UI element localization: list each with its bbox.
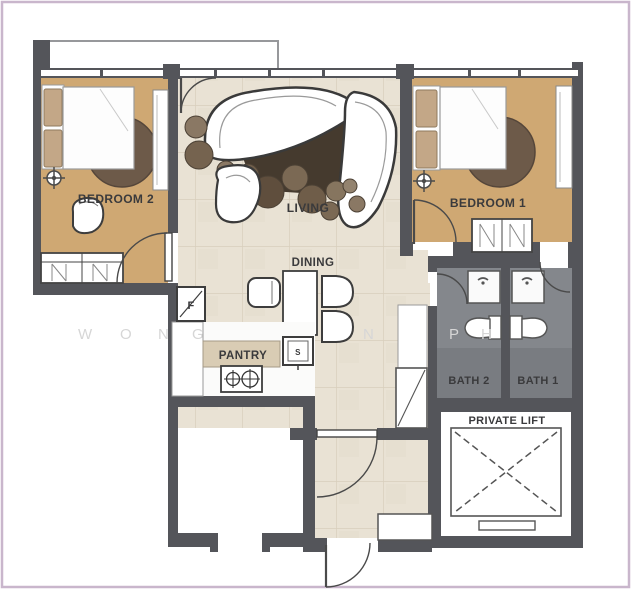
bath2-floor-shade <box>437 348 502 398</box>
window-post-a <box>163 64 180 79</box>
bath1-floor-shade <box>510 348 572 398</box>
watermark-letter: P <box>449 326 459 343</box>
wall-right <box>572 62 583 258</box>
window-mullion <box>214 68 217 78</box>
wall-bath-top-a <box>428 256 540 268</box>
pantry-label: PANTRY <box>219 350 267 362</box>
window-mullion <box>100 68 103 78</box>
watermark-letter: N <box>363 326 374 343</box>
shaft-icon <box>396 368 427 428</box>
dining-chair-icon <box>322 311 353 342</box>
bedroom1-label: BEDROOM 1 <box>450 196 526 210</box>
wall-room-top <box>168 395 315 407</box>
wall-bedroom2-living-divider <box>168 68 178 233</box>
wall-jamb-a <box>210 533 218 552</box>
wall-bath-left-b <box>428 306 437 408</box>
dining-chair-icon <box>322 276 353 307</box>
wall-left <box>33 42 41 293</box>
hall-cabinet-icon <box>398 305 427 368</box>
dining-label: DINING <box>292 257 335 269</box>
watermark-letter: H <box>481 326 492 343</box>
fridge-label: F <box>187 300 194 312</box>
vanity-icon <box>512 271 544 303</box>
wall-bedroom2-bottom <box>33 283 174 295</box>
wall-corridor-top-left <box>290 428 317 440</box>
entry-alcove <box>378 514 432 540</box>
window-mullion <box>268 68 271 78</box>
vanity-icon <box>468 271 500 303</box>
floor-plan-page: W O N G N P H BEDROOM 2 BEDROOM 1 LIVING… <box>0 0 632 600</box>
wardrobe-tall-icon <box>556 86 572 188</box>
bed-icon <box>63 87 134 169</box>
wall-bedroom1-bottom-c <box>568 242 583 256</box>
floor-plan: W O N G N P H BEDROOM 2 BEDROOM 1 LIVING… <box>0 0 632 600</box>
wall-bath-right <box>572 256 583 408</box>
window-mullion <box>322 68 325 78</box>
watermark-letter: N <box>158 326 169 343</box>
door-leaf <box>165 233 172 281</box>
living-label: LIVING <box>287 201 329 215</box>
bath1-label: BATH 1 <box>517 375 558 387</box>
toilet-icon <box>510 316 547 339</box>
stove-icon <box>221 366 262 392</box>
hall-floor <box>400 250 428 310</box>
watermark-letter: O <box>120 326 132 343</box>
pillow-icon <box>416 90 437 127</box>
bath2-label: BATH 2 <box>448 375 489 387</box>
bed-icon <box>440 87 506 169</box>
door-leaf <box>317 430 377 437</box>
wardrobe-icon <box>41 253 123 283</box>
window-post-b <box>396 64 414 79</box>
wall-corridor-top-right <box>377 428 433 440</box>
shelf-icon <box>153 90 168 190</box>
lift-cabin-icon <box>441 412 571 536</box>
wall-corridor-bottom <box>303 538 327 552</box>
window-mullion <box>518 68 521 78</box>
pillow-icon <box>416 131 437 168</box>
private-lift-label: PRIVATE LIFT <box>468 415 545 427</box>
wall-bedroom1-bottom-a <box>400 242 413 256</box>
watermark-letter: G <box>192 326 204 343</box>
window-mullion <box>468 68 471 78</box>
sink-label: S <box>295 348 301 357</box>
lift-door-icon <box>479 521 535 530</box>
watermark-letter: W <box>78 326 93 343</box>
bedroom2-label: BEDROOM 2 <box>78 192 154 206</box>
wall-room-left <box>168 395 178 547</box>
wall-bedroom1-left <box>400 68 412 246</box>
dining-chair-icon <box>248 278 280 307</box>
dresser-icon <box>472 219 532 252</box>
wall-jamb-b <box>262 533 270 552</box>
pillow-icon <box>44 130 62 167</box>
wall-bath-left-a <box>428 262 437 272</box>
wall-room-right <box>303 395 315 547</box>
lift-interior <box>441 412 571 536</box>
pillow-icon <box>44 89 62 126</box>
wall-under-alcove <box>378 540 432 552</box>
wall-bath-divider <box>501 262 510 408</box>
